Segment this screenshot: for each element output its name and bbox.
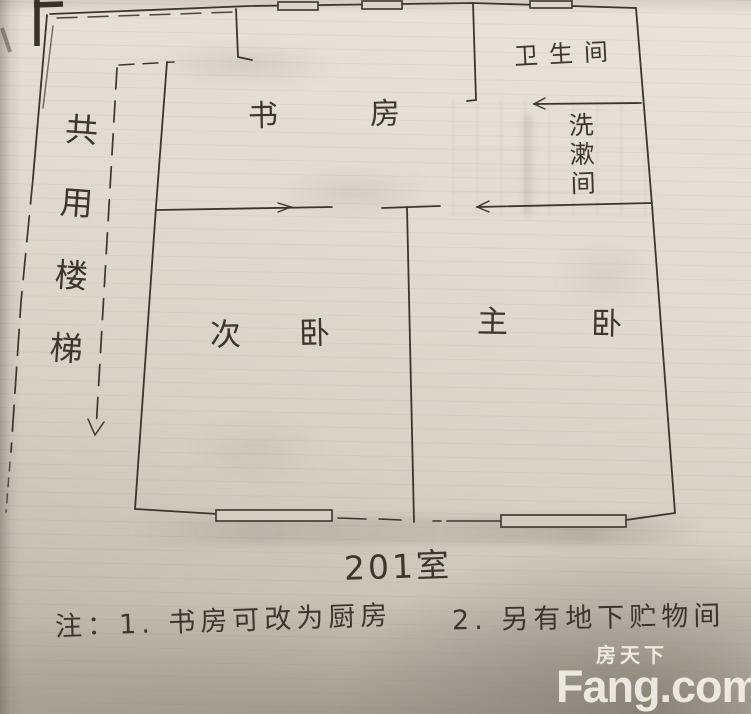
floorplan-photo: 书房 卫生间 洗漱间 次卧 主卧 共用楼梯 201室 注：1. 书房可改为厨房 … bbox=[0, 0, 751, 714]
bathroom-left-wall bbox=[467, 3, 476, 101]
apartment-left-wall bbox=[135, 62, 167, 509]
staircase-direction-arrowhead bbox=[88, 419, 104, 435]
paper-corner-mark bbox=[34, 0, 63, 46]
windows bbox=[216, 1, 626, 527]
unit-label: 201室 bbox=[343, 548, 452, 586]
bottom-wall-right bbox=[626, 513, 675, 520]
window-bottom-secondary bbox=[216, 510, 332, 521]
walls bbox=[50, 3, 675, 522]
partition-study-bedrooms bbox=[157, 207, 332, 210]
partition-center-stub bbox=[382, 206, 440, 208]
bathroom-bottom-wall bbox=[534, 103, 641, 104]
fang-watermark-en: Fang.com bbox=[556, 661, 751, 713]
right-wall bbox=[636, 8, 675, 513]
room-label-study: 书房 bbox=[248, 97, 493, 133]
bedroom-divider-wall bbox=[407, 207, 414, 522]
window-bottom-master bbox=[501, 515, 626, 527]
window-top-2 bbox=[362, 1, 402, 9]
room-label-bathroom: 卫生间 bbox=[513, 39, 619, 70]
staircase-outer-wall-end-dash bbox=[6, 462, 10, 512]
window-top-1 bbox=[278, 2, 318, 10]
entry-dash bbox=[119, 62, 174, 65]
room-label-master-bedroom: 主卧 bbox=[477, 306, 706, 343]
entry-wall-stub bbox=[236, 9, 252, 60]
window-top-3 bbox=[530, 1, 572, 8]
partition-washroom-bottom bbox=[477, 203, 652, 207]
room-label-secondary-bedroom: 次卧 bbox=[210, 316, 389, 352]
paper-edge-tick bbox=[2, 28, 10, 52]
corner-mark-horizontal bbox=[34, 4, 63, 5]
note-line-2: 2. 另有地下贮物间 bbox=[452, 603, 726, 636]
bottom-wall-left bbox=[135, 509, 218, 514]
staircase-outer-wall-dashed bbox=[11, 178, 33, 452]
bottom-wall-middle-dashes bbox=[338, 518, 501, 521]
fang-watermark: 房天下 Fang.com bbox=[556, 639, 751, 713]
room-label-washroom: 洗漱间 bbox=[565, 112, 594, 200]
